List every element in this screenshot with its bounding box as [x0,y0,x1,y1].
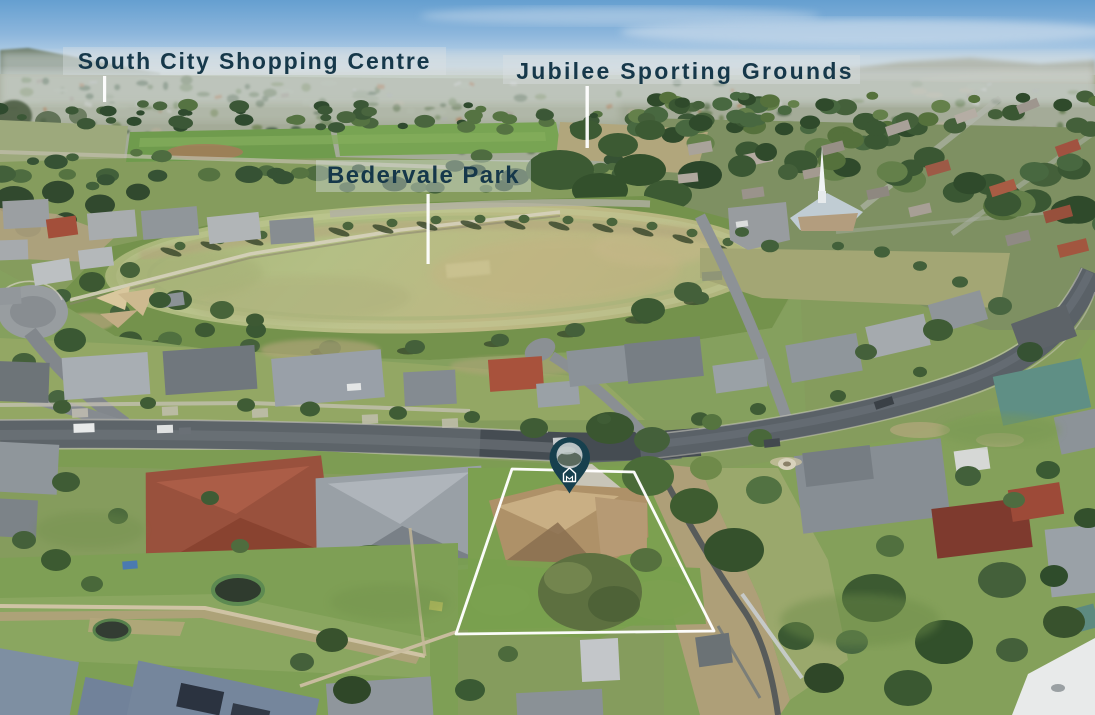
svg-text:South City Shopping Centre: South City Shopping Centre [78,48,431,74]
svg-text:Bedervale Park: Bedervale Park [327,162,520,189]
svg-text:Jubilee Sporting Grounds: Jubilee Sporting Grounds [516,58,854,84]
